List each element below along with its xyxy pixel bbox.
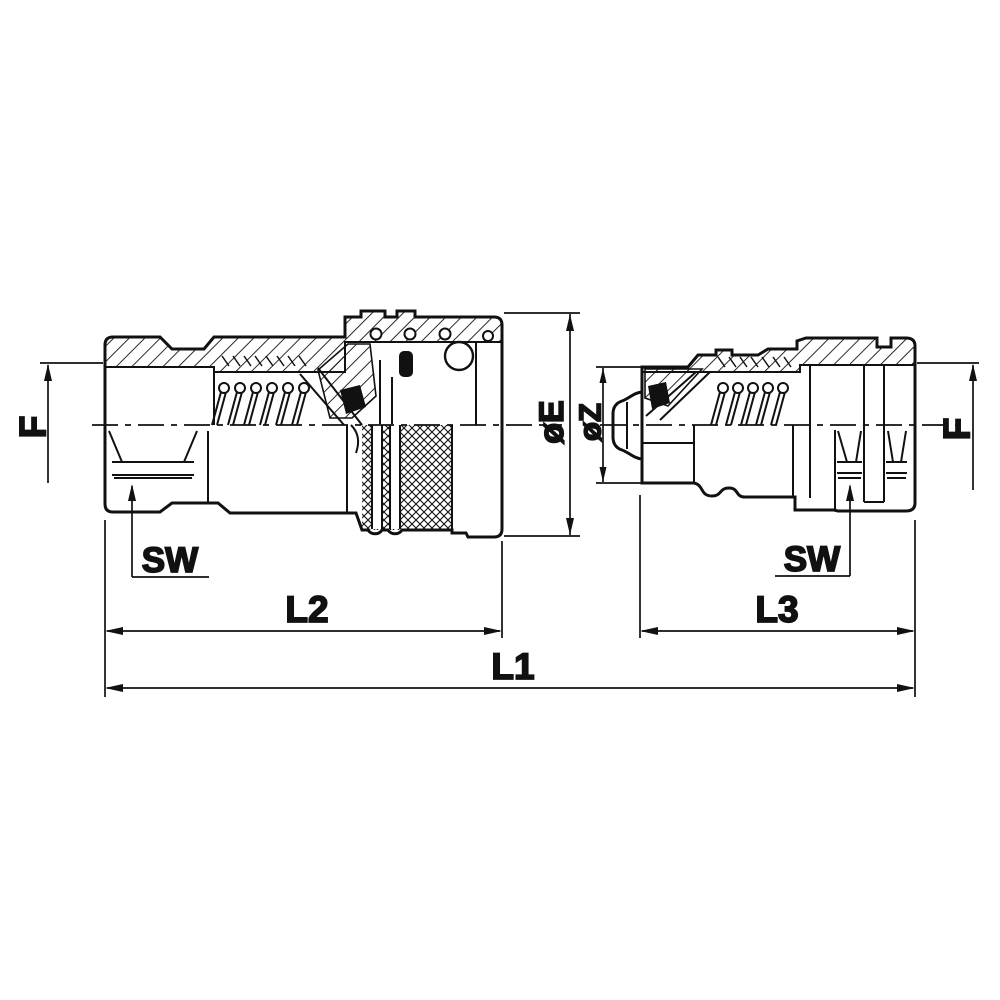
coupling-drawing: F øE øZ F — [0, 0, 1000, 1000]
dim-l1: L1 — [105, 646, 915, 692]
dim-label-l1: L1 — [491, 646, 534, 687]
dim-label-l3: L3 — [755, 589, 798, 630]
sleeve-oring — [399, 351, 413, 377]
socket-half-section — [105, 311, 502, 537]
dim-l2: L2 — [105, 589, 502, 635]
dim-label-f-right: F — [937, 418, 978, 441]
technical-drawing-page: F øE øZ F — [0, 0, 1000, 1000]
dim-f-right: F — [917, 363, 979, 490]
dim-l3: L3 — [640, 589, 915, 635]
dim-label-l2: L2 — [285, 589, 328, 630]
dim-label-f-left: F — [13, 416, 54, 439]
dim-label-dia-z: øZ — [573, 403, 608, 441]
dim-label-dia-e: øE — [533, 400, 571, 443]
dim-f-left: F — [13, 363, 104, 483]
valve-ball — [445, 342, 473, 370]
dim-label-sw-left: SW — [142, 541, 198, 580]
dim-label-sw-right: SW — [784, 540, 840, 579]
